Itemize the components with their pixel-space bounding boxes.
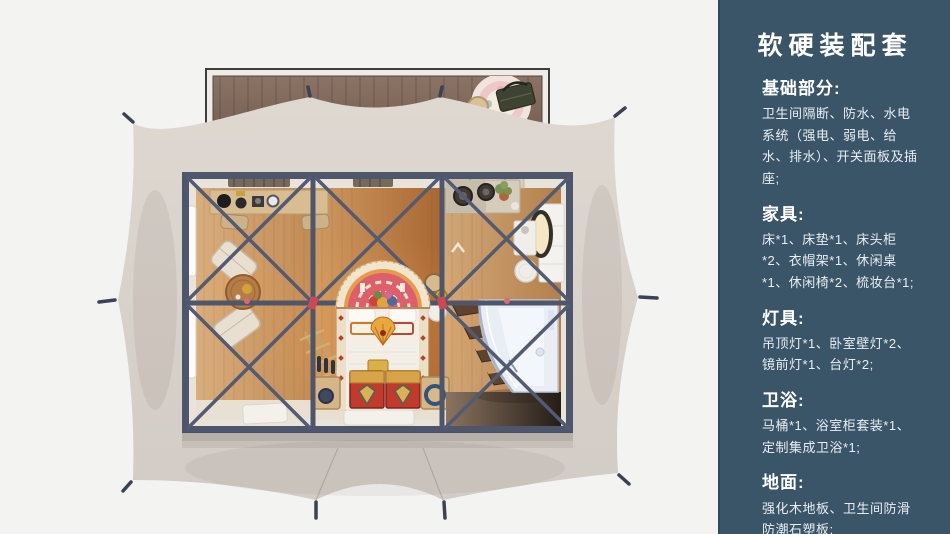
render-area xyxy=(0,0,718,534)
gold-box xyxy=(368,360,388,372)
section-lighting: 灯具: 吊顶灯*1、卧室壁灯*2、镜前灯*1、台灯*2; xyxy=(762,308,922,376)
door-mat xyxy=(344,410,414,425)
pillow xyxy=(348,309,375,322)
section-body: 卫生间隔断、防水、水电系统（强电、弱电、给水、排水）、开关面板及插座; xyxy=(762,103,922,189)
clock xyxy=(268,196,279,207)
room-shadow-soft xyxy=(182,441,573,448)
spec-panel: 软硬装配套 基础部分: 卫生间隔断、防水、水电系统（强电、弱电、给水、排水）、开… xyxy=(718,0,950,534)
bedside-unit-right xyxy=(421,377,449,409)
section-basics: 基础部分: 卫生间隔断、防水、水电系统（强电、弱电、给水、排水）、开关面板及插座… xyxy=(762,78,922,190)
section-heading: 家具: xyxy=(762,204,922,225)
section-bathroom: 卫浴: 马桶*1、浴室柜套装*1、定制集成卫浴*1; xyxy=(762,390,922,458)
panel-title: 软硬装配套 xyxy=(720,26,950,62)
spec-sections: 基础部分: 卫生间隔断、防水、水电系统（强电、弱电、给水、排水）、开关面板及插座… xyxy=(720,78,950,534)
section-body: 吊顶灯*1、卧室壁灯*2、镜前灯*1、台灯*2; xyxy=(762,333,922,376)
door-mat xyxy=(243,403,288,424)
section-body: 强化木地板、卫生间防滑防潮石塑板; xyxy=(762,498,922,534)
section-body: 马桶*1、浴室柜套装*1、定制集成卫浴*1; xyxy=(762,415,922,458)
pillow xyxy=(389,309,416,322)
hat xyxy=(236,198,247,209)
section-flooring: 地面: 强化木地板、卫生间防滑防潮石塑板; xyxy=(762,472,922,534)
section-heading: 灯具: xyxy=(762,308,922,329)
section-heading: 地面: xyxy=(762,472,922,493)
room-interior xyxy=(182,172,573,433)
section-heading: 卫浴: xyxy=(762,390,922,411)
section-body: 床*1、床垫*1、床头柜*2、衣帽架*1、休闲桌*1、休闲椅*2、梳妆台*1; xyxy=(762,229,922,294)
hat xyxy=(217,194,231,208)
tent-floorplan-illustration xyxy=(0,0,718,534)
slide: 软硬装配套 基础部分: 卫生间隔断、防水、水电系统（强电、弱电、给水、排水）、开… xyxy=(0,0,950,534)
vanity-stool xyxy=(515,260,537,282)
washstand xyxy=(446,180,520,213)
room-shadow xyxy=(182,432,573,441)
section-furniture: 家具: 床*1、床垫*1、床头柜*2、衣帽架*1、休闲桌*1、休闲椅*2、梳妆台… xyxy=(762,204,922,294)
section-heading: 基础部分: xyxy=(762,78,922,99)
